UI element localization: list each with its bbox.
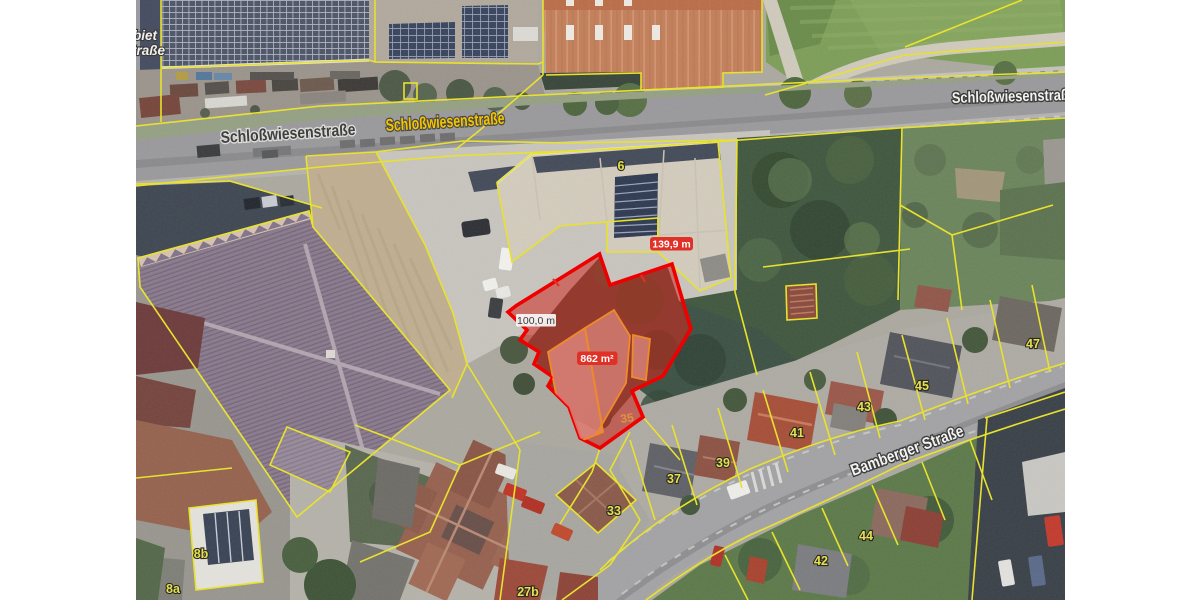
svg-text:139,9 m: 139,9 m: [652, 239, 691, 251]
svg-text:8b: 8b: [194, 547, 209, 561]
svg-text:6: 6: [618, 159, 625, 173]
svg-text:35: 35: [619, 410, 634, 426]
svg-text:42: 42: [814, 554, 828, 568]
svg-text:traße: traße: [132, 43, 166, 58]
svg-text:biet: biet: [133, 28, 158, 43]
svg-text:41: 41: [790, 426, 804, 440]
svg-text:33: 33: [607, 504, 621, 518]
svg-text:37: 37: [667, 472, 681, 486]
svg-text:Schloßwiesenstraße: Schloßwiesenstraße: [952, 87, 1077, 107]
svg-text:47: 47: [1026, 337, 1040, 351]
svg-text:862 m²: 862 m²: [580, 353, 614, 365]
svg-text:39: 39: [716, 456, 730, 470]
svg-text:27b: 27b: [517, 585, 539, 599]
svg-text:43: 43: [857, 400, 871, 414]
svg-text:45: 45: [915, 379, 929, 393]
svg-text:100,0 m: 100,0 m: [517, 315, 555, 327]
svg-text:44: 44: [859, 529, 873, 543]
svg-text:8a: 8a: [166, 582, 181, 596]
